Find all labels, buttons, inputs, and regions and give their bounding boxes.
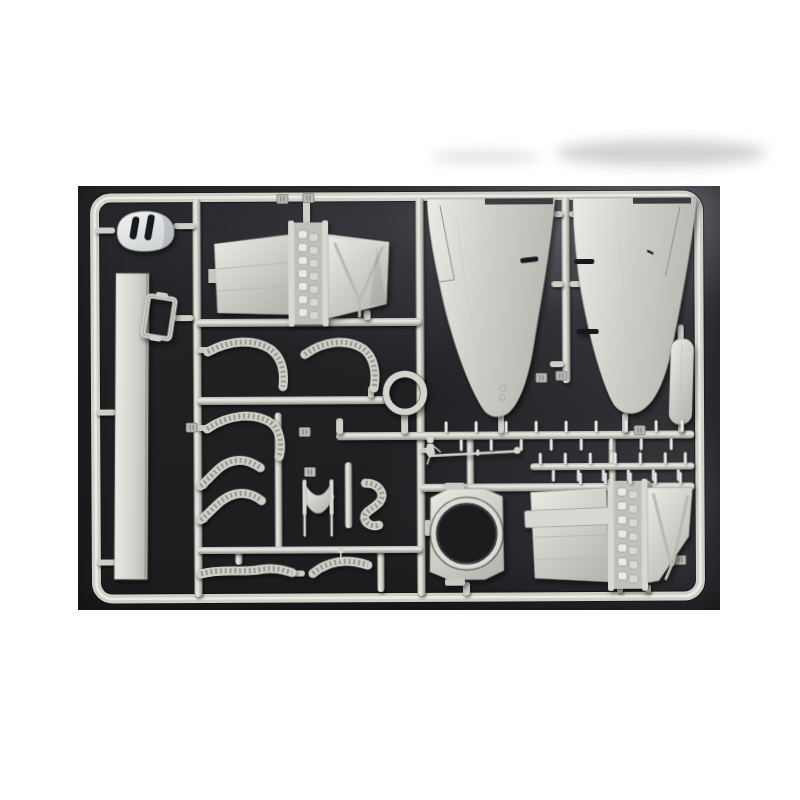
tread-strip-a xyxy=(201,568,292,574)
curved-strip-c xyxy=(207,416,281,457)
curved-strip-b xyxy=(305,342,375,388)
cowl-ring-plate xyxy=(424,482,504,585)
lower-flap-panel xyxy=(524,478,693,591)
pilot-figure xyxy=(425,436,440,464)
pitot-rod xyxy=(430,447,521,456)
blade-panel xyxy=(669,338,695,425)
photo-edge-smudge-small xyxy=(430,150,540,164)
s-duct-b xyxy=(200,493,261,520)
hatch-frame xyxy=(142,291,176,344)
curved-strip-a xyxy=(208,342,284,387)
photo-page xyxy=(0,0,800,800)
engine-cowling xyxy=(117,211,174,251)
j-pipe xyxy=(364,483,382,526)
upper-flap-panel xyxy=(208,220,390,327)
photo-edge-smudge xyxy=(556,140,766,166)
pin-row-c xyxy=(580,474,680,484)
seat xyxy=(302,479,333,535)
s-duct-a xyxy=(200,460,260,486)
wing-half-left xyxy=(427,198,556,417)
sprue-photo xyxy=(78,186,720,610)
small-ring xyxy=(382,370,427,415)
sprue-illustration xyxy=(78,186,720,610)
